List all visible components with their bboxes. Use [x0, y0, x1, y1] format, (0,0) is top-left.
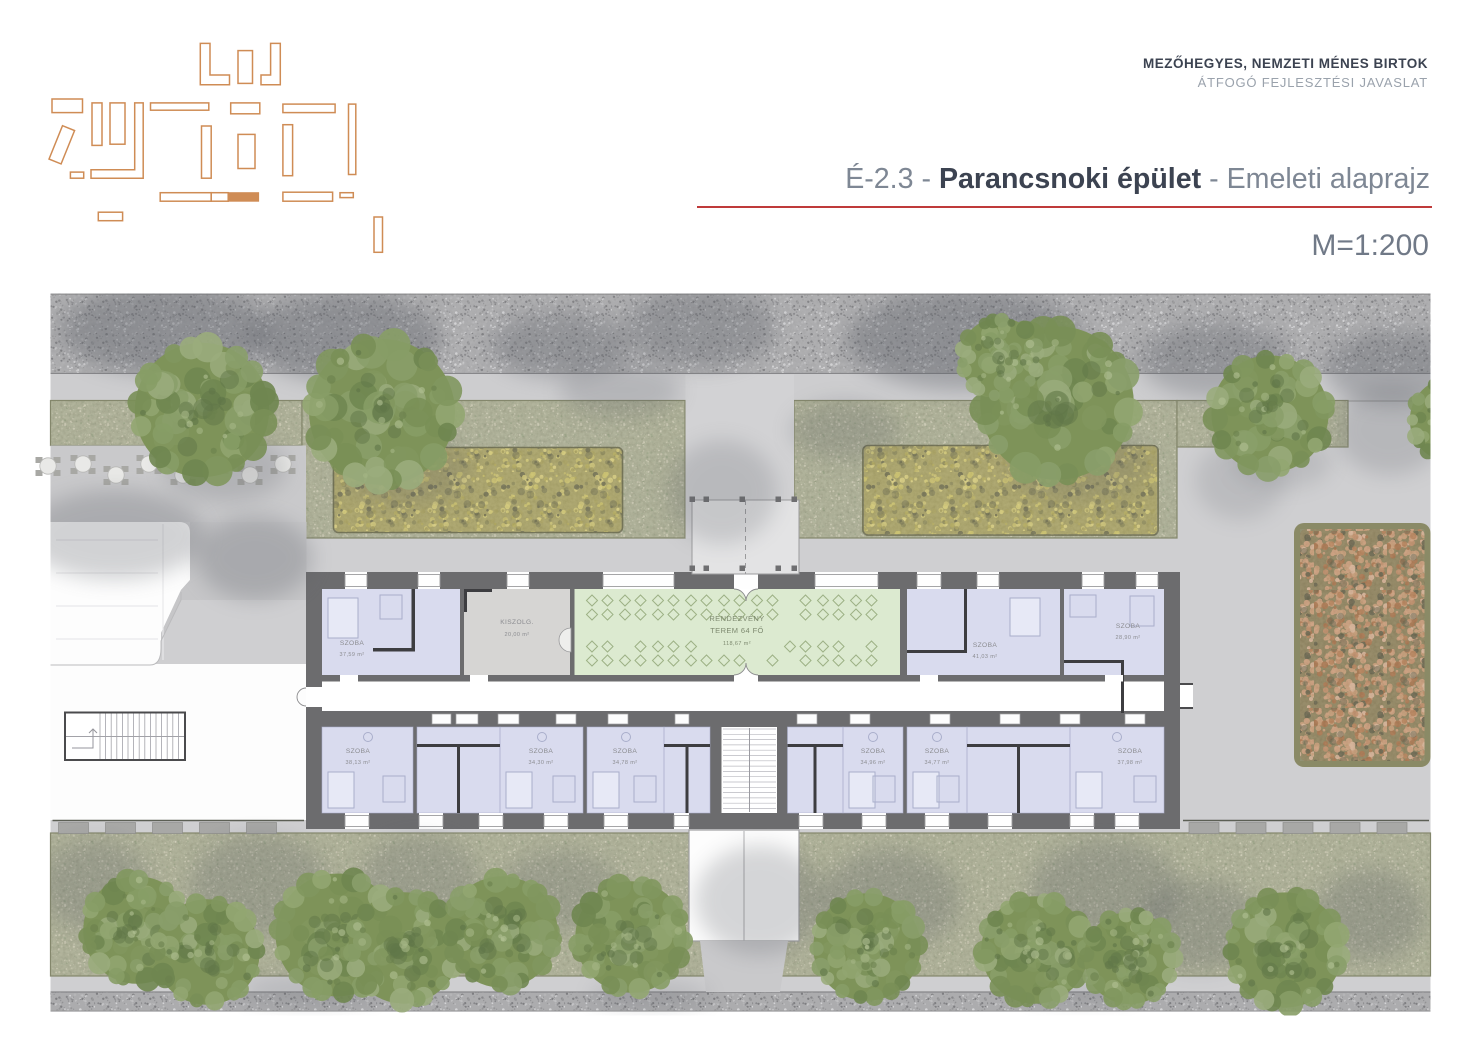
svg-text:SZOBA: SZOBA: [925, 748, 950, 755]
svg-text:20,00 m²: 20,00 m²: [505, 632, 530, 638]
svg-text:34,96 m²: 34,96 m²: [861, 760, 886, 766]
svg-text:É-2.3 - Parancsnoki épület - E: É-2.3 - Parancsnoki épület - Emeleti ala…: [845, 162, 1430, 195]
svg-text:34,30 m²: 34,30 m²: [529, 760, 554, 766]
svg-text:41,03 m²: 41,03 m²: [973, 654, 998, 660]
svg-text:SZOBA: SZOBA: [1116, 623, 1141, 630]
svg-text:118,67 m²: 118,67 m²: [723, 641, 751, 647]
svg-text:SZOBA: SZOBA: [529, 748, 554, 755]
svg-text:37,59 m²: 37,59 m²: [340, 652, 365, 658]
svg-text:SZOBA: SZOBA: [1118, 748, 1143, 755]
svg-text:37,98 m²: 37,98 m²: [1118, 760, 1143, 766]
svg-text:34,78 m²: 34,78 m²: [613, 760, 638, 766]
svg-text:M=1:200: M=1:200: [1311, 229, 1429, 262]
svg-text:MEZŐHEGYES, NEMZETI MÉNES BIRT: MEZŐHEGYES, NEMZETI MÉNES BIRTOK: [1143, 56, 1428, 71]
svg-text:SZOBA: SZOBA: [340, 640, 365, 647]
svg-text:28,90 m²: 28,90 m²: [1116, 635, 1141, 641]
svg-text:34,77 m²: 34,77 m²: [925, 760, 950, 766]
svg-text:KISZOLG.: KISZOLG.: [500, 619, 534, 626]
svg-text:SZOBA: SZOBA: [613, 748, 638, 755]
svg-text:SZOBA: SZOBA: [973, 642, 998, 649]
svg-text:38,13 m²: 38,13 m²: [346, 760, 371, 766]
svg-text:TEREM 64 FŐ: TEREM 64 FŐ: [710, 626, 764, 635]
svg-text:RENDEZVÉNY: RENDEZVÉNY: [709, 614, 764, 623]
svg-text:SZOBA: SZOBA: [861, 748, 886, 755]
svg-text:ÁTFOGÓ FEJLESZTÉSI JAVASLAT: ÁTFOGÓ FEJLESZTÉSI JAVASLAT: [1198, 75, 1428, 90]
svg-text:SZOBA: SZOBA: [346, 748, 371, 755]
